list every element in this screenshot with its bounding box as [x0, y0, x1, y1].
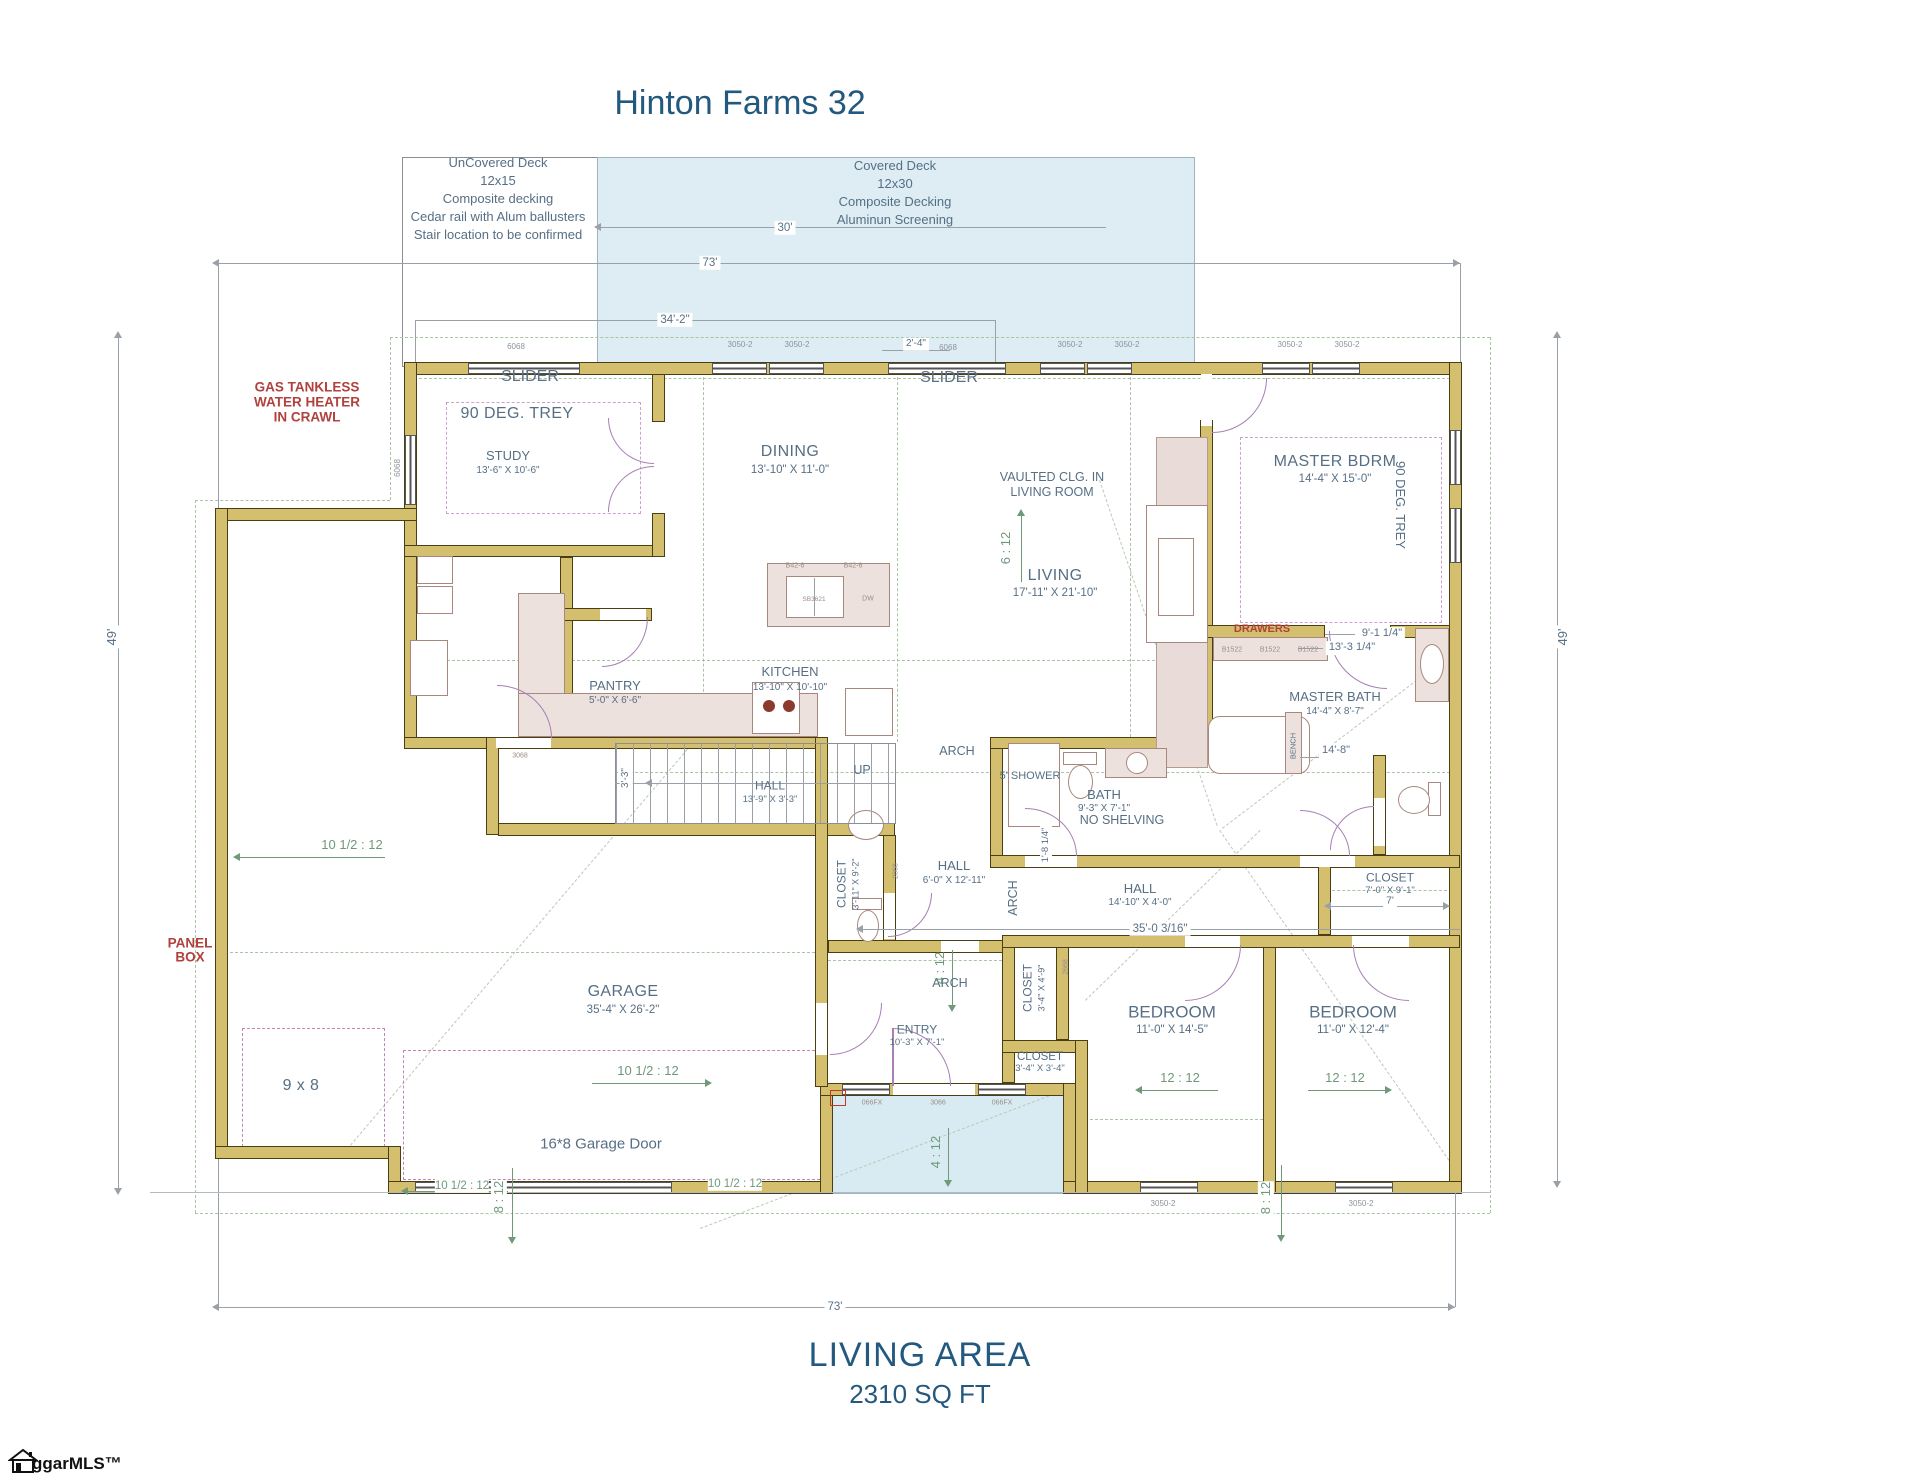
note-vaulted-2: LIVING ROOM: [1010, 485, 1093, 501]
deck-covered-line3: Composite Decking: [839, 194, 952, 210]
room-dims-bedroom1: 11'-0" X 14'-5": [1136, 1023, 1208, 1037]
overhang-dash-connector: [195, 500, 390, 501]
note-garage-door: 16*8 Garage Door: [540, 1136, 662, 1155]
dim-label-35: 35'-0 3/16": [1130, 922, 1191, 936]
dim-ext: [1455, 1192, 1456, 1307]
living-area-title: LIVING AREA: [809, 1334, 1032, 1377]
wall-bedroom1-left: [1075, 1040, 1088, 1193]
note-arch-1: ARCH: [939, 744, 974, 760]
pitch-label-living: 6 : 12: [998, 532, 1014, 565]
pitch-arrowhead: [1135, 1086, 1142, 1094]
cabinet-code: B1522: [1298, 647, 1318, 656]
dim-label-2-4: 2'-4": [903, 338, 929, 351]
room-label-closet-big: CLOSET: [1366, 871, 1414, 886]
door-code: 3068: [512, 753, 528, 762]
room-label-bedroom2: BEDROOM: [1309, 1001, 1397, 1022]
wall-bedroom-divider: [1263, 947, 1276, 1193]
room-label-bedroom1: BEDROOM: [1128, 1001, 1216, 1022]
window-code: 6068: [393, 459, 403, 477]
room-dims-hall-bed: 14'-10" X 4'-0": [1108, 897, 1171, 910]
master-vanity-sink: [1420, 644, 1444, 684]
wall-study-right-a: [652, 374, 665, 422]
note-shower: 5' SHOWER: [1000, 770, 1061, 784]
door-arc-powder: [888, 893, 932, 937]
dimline-49-right: [1557, 337, 1558, 1186]
wall-garage-top: [215, 508, 417, 521]
dim-ext: [218, 1159, 219, 1307]
room-dims-closet-powder: 3'-11" X 9'-2": [850, 858, 861, 909]
dim-label-9-1: 9'-1 1/4": [1359, 627, 1405, 641]
window-code: 3050-2: [1058, 340, 1083, 350]
window-code: 066FX: [992, 1100, 1013, 1109]
pitch-label-bed1: 12 : 12: [1160, 1070, 1200, 1086]
pitch-label-bed2: 12 : 12: [1325, 1070, 1365, 1086]
deck-uncovered-line2: 12x15: [480, 173, 515, 189]
pitch-label-entry: 4 : 12: [932, 952, 948, 985]
cabinet-code: DW: [862, 596, 874, 605]
door-gap-laundry: [496, 738, 551, 748]
wall-garage-bottom-left: [215, 1146, 401, 1159]
window-code: 3066: [930, 1100, 946, 1109]
dim-arrow: [594, 223, 601, 231]
window-code: 6068: [507, 342, 525, 352]
dimline-73-top: [218, 263, 1460, 264]
room-dims-garage: 35'-4" X 26'-2": [587, 1003, 660, 1017]
room-label-hall-stairs: HALL: [755, 779, 785, 794]
overhang-dash-top: [390, 337, 1490, 338]
dim-label-73-bottom: 73': [825, 1300, 846, 1314]
window-code: 3050-2: [1151, 1199, 1176, 1209]
living-area-sqft: 2310 SQ FT: [849, 1378, 991, 1411]
room-label-master: MASTER BDRM: [1274, 452, 1397, 472]
pitch-arrow-living: [1021, 515, 1022, 582]
pitch-arrowhead: [944, 1180, 952, 1187]
pitch-label-porch: 4 : 12: [928, 1136, 944, 1169]
pitch-arrow-garage-left: [240, 857, 385, 858]
overhang-dash-right: [1490, 337, 1491, 1213]
garage-dash-line: [230, 952, 815, 953]
pitch-arrow-bed2: [1308, 1090, 1385, 1091]
slider-label-2: SLIDER: [920, 368, 978, 388]
cabinet-code: B42-6: [786, 563, 805, 572]
arch-gap-entry: [941, 941, 979, 952]
note-drawers: DRAWERS: [1234, 623, 1290, 637]
room-dims-master-bath: 14'-4" X 8'-7": [1306, 706, 1364, 719]
room-label-hall-mid: HALL: [938, 858, 971, 874]
cabinet-code: B1522: [1222, 647, 1242, 656]
room-dims-hall-stairs: 13'-9" X 3'-3": [743, 794, 798, 806]
cabinet-code: B42-6: [844, 563, 863, 572]
pitch-label-bed-mid: 8 : 12: [1258, 1182, 1274, 1215]
dimline-49-left: [118, 337, 119, 1193]
room-label-master-bath: MASTER BATH: [1289, 689, 1381, 705]
window-right-1: [1450, 430, 1461, 485]
pitch-arrow-bed1: [1142, 1090, 1218, 1091]
note-trey-master: 90 DEG. TREY: [1392, 461, 1408, 549]
pitch-arrowhead: [705, 1079, 712, 1087]
room-dims-study: 13'-6" X 10'-6": [476, 465, 539, 478]
dim-label-3-3: 3'-3": [620, 765, 633, 791]
window-living-1: [1040, 363, 1085, 374]
door-code: 2668: [1063, 959, 1072, 975]
window-right-2: [1450, 508, 1461, 563]
dim-arrow: [1448, 1303, 1455, 1311]
window-living-2: [1087, 363, 1132, 374]
note-9x8: 9 x 8: [283, 1076, 320, 1096]
staircase-arrowhead: [645, 779, 652, 787]
garage-door-16x8-outline: [403, 1050, 825, 1180]
pitch-arrowhead: [1017, 509, 1025, 516]
pitch-label-front-left: 10 1/2 : 12: [435, 1179, 489, 1193]
overhang-dash-upperleft: [390, 337, 391, 500]
window-code: 066FX: [862, 1100, 883, 1109]
dim-label-1-8: 1'-8 1/4": [1040, 825, 1052, 866]
wall-closet-left: [1002, 947, 1015, 1083]
pitch-arrow-garage-right: [592, 1083, 705, 1084]
note-arch-2: ARCH: [1006, 880, 1022, 915]
window-code: 3050-2: [785, 340, 810, 350]
window-entry-2: [978, 1084, 1026, 1095]
laundry-tub: [410, 640, 448, 696]
wall-exterior-right: [1449, 362, 1462, 1193]
room-label-closet-powder: CLOSET: [835, 860, 850, 908]
mls-logo: ggarMLS™: [8, 1448, 122, 1479]
dim-label-30: 30': [775, 221, 796, 235]
mls-logo-text: ggarMLS™: [32, 1454, 122, 1474]
pitch-arrow-door: [512, 1168, 513, 1237]
room-label-kitchen: KITCHEN: [761, 664, 818, 680]
dim-arrow: [1443, 902, 1450, 910]
window-dining-2: [769, 363, 824, 374]
room-label-closet-entry: CLOSET: [1017, 1050, 1063, 1064]
window-code: 3050-2: [1115, 340, 1140, 350]
pitch-arrowhead: [1277, 1235, 1285, 1242]
room-dims-living: 17'-11" X 21'-10": [1013, 586, 1098, 600]
room-label-entry: ENTRY: [897, 1023, 937, 1038]
room-label-dining: DINING: [761, 442, 819, 462]
room-dims-master: 14'-4" X 15'-0": [1299, 472, 1372, 486]
page-title: Hinton Farms 32: [614, 82, 865, 125]
laundry-sink-2: [417, 586, 453, 614]
pitch-arrowhead: [1385, 1086, 1392, 1094]
pitch-label-door: 8 : 12: [491, 1181, 507, 1214]
room-label-closet-bed1: CLOSET: [1021, 964, 1036, 1012]
note-panel-2: BOX: [175, 950, 204, 967]
dimline-3-3: [633, 752, 634, 812]
dim-label-7: 7': [1383, 894, 1397, 907]
window-code: 6068: [939, 343, 957, 353]
window-code: 3050-2: [728, 340, 753, 350]
dim-ext: [218, 263, 219, 508]
floor-plan-canvas: Hinton Farms 32 UnCovered Deck 12x15 Com…: [0, 0, 1920, 1483]
deck-uncovered-line1: UnCovered Deck: [449, 155, 548, 171]
dim-arrow: [1453, 259, 1460, 267]
porch-eave-dash: [1080, 1119, 1263, 1120]
slider-label-1: SLIDER: [501, 367, 559, 387]
deck-uncovered-line5: Stair location to be confirmed: [414, 227, 582, 243]
range-burner-1: [763, 700, 775, 712]
room-dims-hall-mid: 6'-0" X 12'-11": [923, 875, 985, 888]
pitch-label-garage-left: 10 1/2 : 12: [321, 837, 382, 853]
dimline-9-1: [1325, 634, 1355, 635]
window-master-2: [1312, 363, 1360, 374]
window-dining-1: [712, 363, 767, 374]
pitch-arrowhead: [401, 1187, 408, 1195]
room-dims-dining: 13'-10" X 11'-0": [751, 463, 829, 477]
window-code: 3050-2: [1278, 340, 1303, 350]
pitch-label-garage-right: 10 1/2 : 12: [617, 1063, 678, 1079]
door-code: 2868: [893, 863, 902, 879]
post-marker-box: [830, 1090, 846, 1106]
window-entry-1: [842, 1084, 890, 1095]
laundry-sink-1: [417, 556, 453, 584]
pitch-arrowhead: [233, 853, 240, 861]
cabinet-code: B1522: [1260, 647, 1280, 656]
room-label-study: STUDY: [486, 448, 530, 464]
bath-toilet-tank: [1063, 752, 1097, 765]
room-dims-pantry: 5'-0" X 6'-6": [589, 695, 641, 708]
dim-label-49-left: 49': [104, 626, 120, 649]
window-study-left: [405, 435, 416, 505]
room-label-living: LIVING: [1028, 566, 1083, 586]
room-label-garage: GARAGE: [588, 982, 659, 1002]
wall-study-right-b: [652, 513, 665, 557]
dimline-34-2: [415, 320, 995, 321]
note-up: UP: [853, 763, 870, 779]
window-code: 3050-2: [1349, 1199, 1374, 1209]
cabinet-code: SB3621: [802, 596, 825, 604]
room-dims-bedroom2: 11'-0" X 12'-4": [1317, 1023, 1389, 1037]
pitch-label-front-right: 10 1/2 : 12: [708, 1177, 762, 1191]
wall-bath-left: [990, 737, 1003, 867]
dim-arrow: [114, 1188, 122, 1195]
door-arc-master: [1212, 378, 1267, 433]
door-arc-master-bath: [1300, 810, 1350, 856]
dim-label-13-3: 13'-3 1/4": [1326, 641, 1378, 655]
pitch-arrow-porch: [948, 1128, 949, 1180]
roof-dash-v3: [1130, 362, 1131, 742]
dim-arrow: [1553, 331, 1561, 338]
dim-label-14-8: 14'-8": [1319, 744, 1353, 758]
hip-diagonal-1: [1219, 830, 1449, 1161]
room-dims-closet-entry: 3'-4" X 3'-4": [1015, 1063, 1064, 1075]
pitch-arrowhead: [508, 1237, 516, 1244]
dim-arrow: [1324, 902, 1331, 910]
dim-arrow: [856, 925, 863, 933]
window-master-1: [1262, 363, 1310, 374]
roof-dash-v2: [897, 362, 898, 742]
door-gap-garage-entry: [816, 1003, 827, 1055]
pitch-arrow-bed-mid: [1281, 1165, 1282, 1235]
fireplace-insert: [1158, 538, 1194, 616]
deck-uncovered-line3: Composite decking: [443, 191, 554, 207]
slab-edge-line: [150, 1192, 1490, 1193]
door-arc-bedroom2: [1353, 945, 1409, 1001]
note-bench: BENCH: [1288, 733, 1297, 759]
note-vaulted-1: VAULTED CLG. IN: [1000, 470, 1104, 486]
door-arc-bedroom1: [1185, 945, 1241, 1001]
wall-stairs-bottom: [498, 823, 895, 836]
dim-ext: [415, 320, 416, 362]
room-dims-closet-bed1: 3'-4" X 4'-9": [1036, 965, 1047, 1012]
room-label-bath: BATH: [1087, 787, 1121, 803]
deck-uncovered-line4: Cedar rail with Alum ballusters: [411, 209, 586, 225]
overhang-dash-left: [195, 500, 196, 1213]
wall-garage-left: [215, 508, 228, 1159]
room-label-hall-bed: HALL: [1124, 881, 1157, 897]
pitch-arrowhead: [948, 1005, 956, 1012]
room-dims-kitchen: 13'-10" X 10'-10": [753, 682, 827, 695]
refrigerator: [845, 688, 893, 736]
window-code: 3050-2: [1335, 340, 1360, 350]
dim-arrow: [114, 331, 122, 338]
roof-dash-v1: [703, 362, 704, 742]
dim-ext: [995, 320, 996, 362]
dim-label-34-2: 34'-2": [657, 313, 692, 327]
room-dims-entry: 10'-3" X 7'-1": [890, 1037, 945, 1049]
door-gap-toilet-room: [1374, 798, 1385, 846]
overhang-dash-bottom: [195, 1213, 1490, 1214]
door-gap-master: [1201, 374, 1212, 426]
dim-ext: [1460, 263, 1461, 362]
room-label-pantry: PANTRY: [589, 678, 641, 694]
deck-covered-line2: 12x30: [877, 176, 912, 192]
wall-closet-big-left: [1318, 855, 1331, 935]
deck-covered-line1: Covered Deck: [854, 158, 936, 174]
entry-dash-line: [828, 960, 1002, 961]
note-trey-study: 90 DEG. TREY: [461, 404, 574, 424]
note-water-heater-3: IN CRAWL: [274, 410, 341, 427]
range-burner-2: [783, 700, 795, 712]
dim-label-73-top: 73': [700, 256, 721, 270]
wall-stairs-left: [486, 737, 499, 835]
dim-arrow: [1553, 1181, 1561, 1188]
deck-covered-line4: Aluminun Screening: [837, 212, 953, 228]
note-no-shelving: NO SHELVING: [1080, 813, 1165, 829]
bath-vanity-sink: [1126, 752, 1148, 774]
dim-label-49-right: 49': [1555, 626, 1571, 649]
door-gap-master-bath: [1300, 856, 1355, 867]
master-toilet-bowl: [1398, 786, 1430, 814]
door-arc-garage-entry: [830, 1003, 882, 1055]
